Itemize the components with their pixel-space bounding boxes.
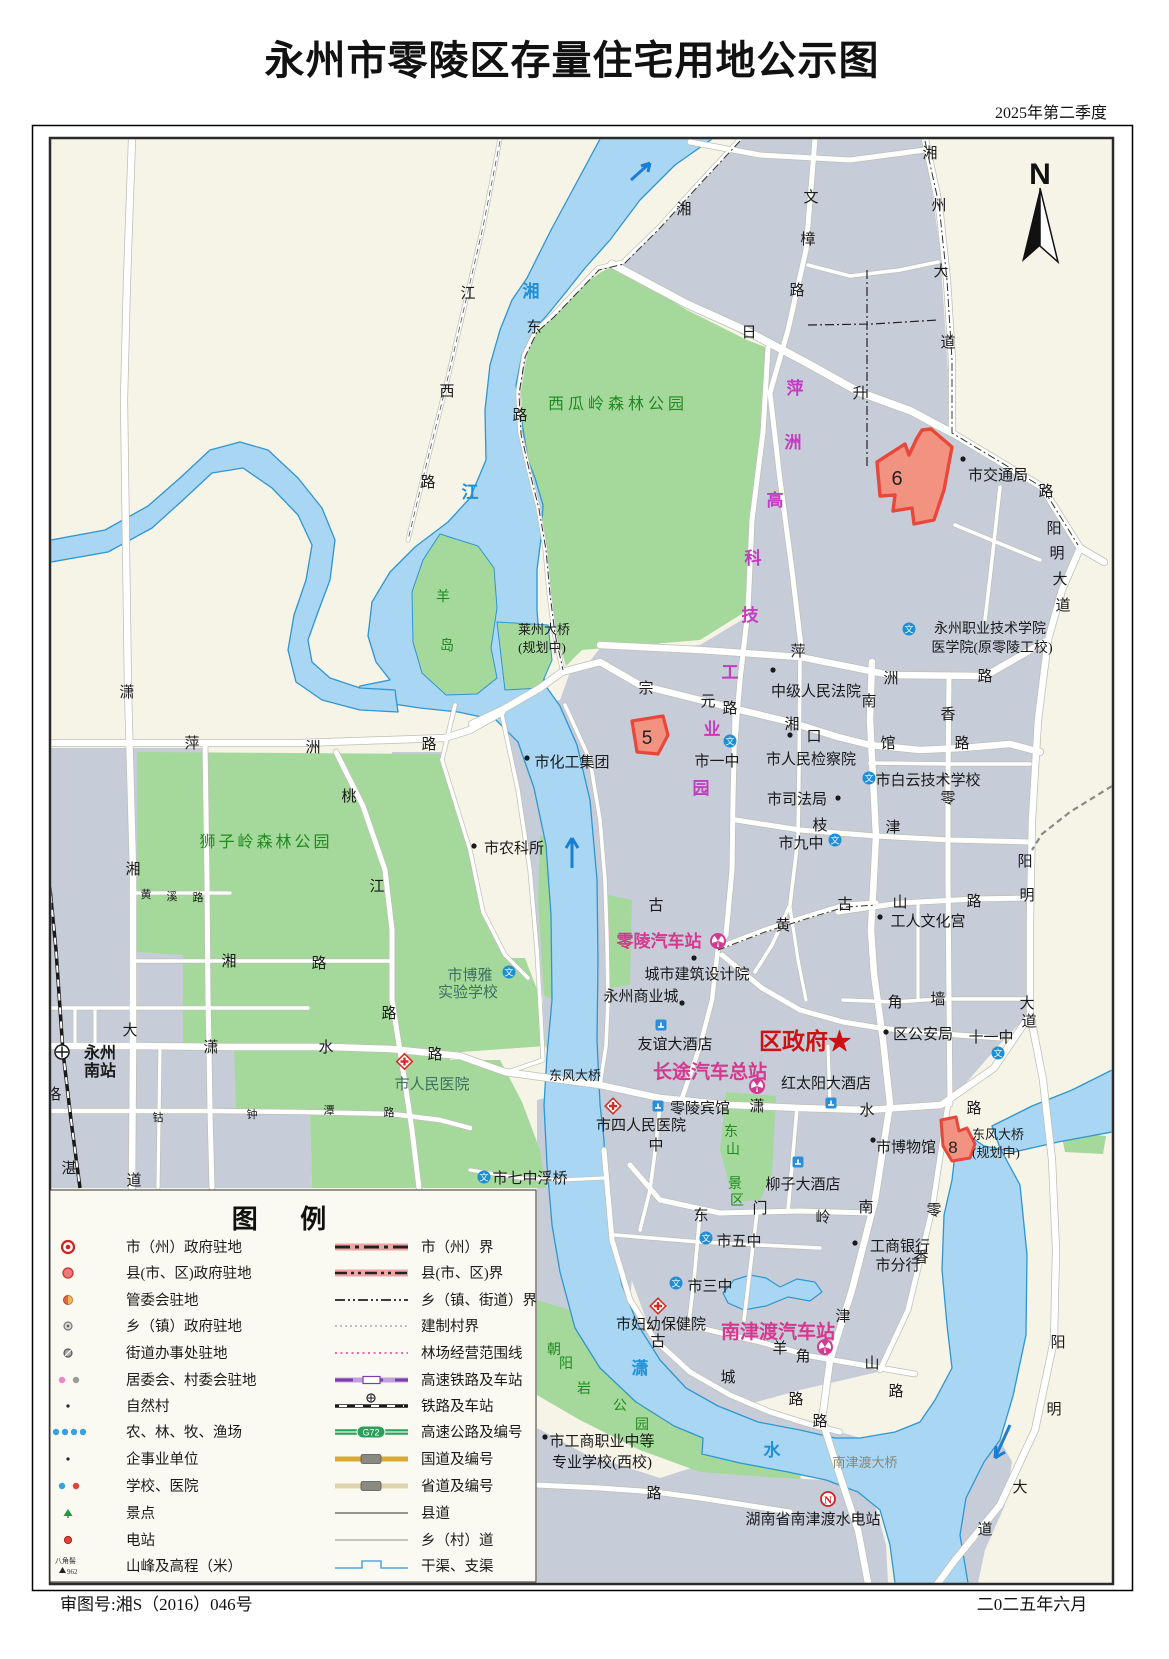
svg-text:工人文化宫: 工人文化宫 [890,913,965,930]
svg-text:湘: 湘 [125,861,140,878]
svg-text:路: 路 [427,1046,442,1063]
svg-text:路: 路 [311,955,326,972]
svg-text:永州: 永州 [83,1043,116,1062]
svg-text:建制村界: 建制村界 [421,1318,479,1335]
svg-text:南津渡大桥: 南津渡大桥 [832,1455,897,1470]
svg-text:路: 路 [1038,483,1053,500]
svg-text:零陵汽车站: 零陵汽车站 [616,931,702,951]
svg-text:钴: 钴 [153,1110,164,1124]
svg-text:路: 路 [788,1391,803,1408]
svg-text:文: 文 [504,967,513,978]
svg-text:溪: 溪 [167,890,178,903]
svg-text:园: 园 [693,779,710,798]
svg-text:工商银行: 工商银行 [870,1238,930,1255]
svg-text:城: 城 [720,1369,735,1386]
svg-text:洲: 洲 [883,671,898,687]
svg-text:江: 江 [460,285,475,302]
svg-text:5: 5 [642,728,653,749]
svg-text:景点: 景点 [126,1505,155,1522]
svg-text:州: 州 [931,198,946,214]
svg-text:十一中: 十一中 [968,1029,1013,1046]
svg-text:市三中: 市三中 [687,1278,732,1295]
svg-text:友谊大酒店: 友谊大酒店 [637,1036,712,1053]
svg-text:萍: 萍 [790,643,805,660]
svg-text:高速铁路及车站: 高速铁路及车站 [421,1372,523,1389]
svg-text:湘: 湘 [676,201,691,218]
svg-text:山: 山 [726,1142,740,1158]
svg-text:湘: 湘 [784,716,799,733]
svg-text:市司法局: 市司法局 [767,791,827,808]
svg-text:羊: 羊 [436,589,450,605]
svg-text:审图号:湘S（2016）046号: 审图号:湘S（2016）046号 [60,1595,253,1614]
svg-text:元: 元 [700,694,715,710]
svg-text:潇: 潇 [203,1039,218,1056]
svg-text:大: 大 [122,1022,137,1039]
svg-text:农、林、牧、渔场: 农、林、牧、渔场 [126,1424,242,1441]
svg-text:山: 山 [892,894,907,911]
svg-text:图 例: 图 例 [232,1205,345,1234]
svg-text:阳: 阳 [1050,1334,1065,1351]
svg-text:路: 路 [381,1005,396,1022]
svg-text:市一中: 市一中 [694,753,739,770]
svg-text:潇: 潇 [119,684,134,701]
svg-text:永州市零陵区存量住宅用地公示图: 永州市零陵区存量住宅用地公示图 [265,38,880,83]
svg-text:升: 升 [852,385,867,402]
svg-text:乡（镇、街道）界: 乡（镇、街道）界 [421,1292,537,1309]
svg-text:中级人民法院: 中级人民法院 [771,682,861,700]
svg-text:区: 区 [730,1193,744,1209]
svg-text:文: 文 [671,1278,680,1289]
svg-text:古: 古 [648,897,663,914]
svg-text:街道办事处驻地: 街道办事处驻地 [126,1345,228,1362]
svg-text:墙: 墙 [930,991,945,1008]
svg-text:居委会、村委会驻地: 居委会、村委会驻地 [126,1372,257,1389]
svg-text:宗: 宗 [638,679,653,697]
svg-text:路: 路 [193,891,204,904]
svg-text:萍: 萍 [787,378,804,398]
svg-text:实验学校: 实验学校 [438,984,498,1001]
svg-text:道: 道 [977,1521,992,1538]
svg-text:市五中: 市五中 [716,1233,761,1250]
svg-text:路: 路 [812,1413,827,1430]
svg-text:技: 技 [742,605,760,625]
svg-text:管委会驻地: 管委会驻地 [126,1292,199,1309]
svg-text:角: 角 [795,1348,810,1365]
svg-text:市博雅: 市博雅 [447,967,492,984]
svg-text:莱州大桥: 莱州大桥 [518,622,570,637]
svg-text:道: 道 [126,1172,141,1189]
svg-text:市工商职业中等: 市工商职业中等 [549,1432,654,1450]
svg-text:学校、医院: 学校、医院 [126,1478,199,1495]
svg-text:路: 路 [888,1383,903,1400]
svg-text:8: 8 [948,1138,957,1157]
svg-text:津: 津 [885,819,900,836]
svg-text:道: 道 [1021,1013,1036,1030]
svg-text:高: 高 [767,490,784,510]
svg-text:市白云技术学校: 市白云技术学校 [875,772,980,789]
svg-text:明: 明 [1019,887,1034,904]
svg-text:大: 大 [1019,995,1034,1012]
svg-text:科: 科 [745,548,762,568]
svg-text:钟: 钟 [247,1107,258,1121]
svg-text:东: 东 [526,319,541,336]
svg-text:湘: 湘 [922,145,937,162]
svg-text:路: 路 [954,735,969,752]
svg-text:湘: 湘 [523,281,540,301]
svg-text:大: 大 [1012,1479,1027,1496]
svg-text:文: 文 [904,624,913,635]
svg-text:电站: 电站 [126,1532,155,1549]
svg-text:文: 文 [701,1233,710,1244]
svg-text:湖南省南津渡水电站: 湖南省南津渡水电站 [745,1511,880,1528]
svg-text:(规划中): (规划中) [518,640,566,655]
svg-text:市农科所: 市农科所 [484,840,544,857]
svg-text:柳子大酒店: 柳子大酒店 [765,1176,840,1193]
svg-text:文: 文 [803,189,818,206]
svg-text:国道及编号: 国道及编号 [421,1451,494,1468]
svg-text:962: 962 [67,1568,78,1576]
svg-text:洲: 洲 [305,740,320,756]
svg-text:县道: 县道 [421,1505,450,1522]
svg-text:市（州）界: 市（州）界 [421,1239,494,1256]
svg-text:企事业单位: 企事业单位 [126,1450,199,1468]
svg-text:省道及编号: 省道及编号 [421,1478,494,1495]
svg-text:长途汽车总站: 长途汽车总站 [653,1060,767,1083]
svg-text:水: 水 [859,1102,874,1119]
svg-text:路: 路 [421,736,436,753]
svg-text:山: 山 [864,1355,879,1372]
svg-text:路: 路 [977,668,992,685]
svg-text:N: N [824,1495,832,1507]
svg-text:门: 门 [752,1200,767,1217]
svg-text:黄: 黄 [775,917,790,934]
svg-text:东风大桥: 东风大桥 [549,1068,601,1083]
svg-text:市九中: 市九中 [778,835,823,852]
svg-text:景: 景 [728,1177,742,1192]
svg-text:桃: 桃 [341,788,356,805]
svg-text:津: 津 [835,1308,850,1325]
svg-text:铁路及车站: 铁路及车站 [421,1398,494,1415]
svg-text:八角髻: 八角髻 [55,1556,76,1565]
svg-text:市人民检察院: 市人民检察院 [766,750,856,768]
svg-text:南站: 南站 [84,1061,116,1080]
svg-text:路: 路 [966,893,981,910]
svg-text:路: 路 [512,407,527,424]
svg-text:水: 水 [764,1440,782,1460]
svg-text:江: 江 [369,878,384,895]
svg-text:城市建筑设计院: 城市建筑设计院 [644,965,749,983]
svg-text:潇: 潇 [632,1358,649,1378]
svg-text:医学院(原零陵工校): 医学院(原零陵工校) [931,639,1053,656]
svg-text:公: 公 [613,1399,627,1414]
svg-text:南津渡汽车站: 南津渡汽车站 [721,1320,835,1343]
svg-text:岭: 岭 [815,1209,830,1226]
svg-text:阳: 阳 [1017,853,1032,870]
svg-text:业: 业 [704,720,721,739]
svg-text:市分行: 市分行 [875,1257,920,1274]
svg-text:口: 口 [806,729,821,745]
svg-text:阳: 阳 [1046,520,1061,537]
svg-text:山峰及高程（米）: 山峰及高程（米） [126,1558,242,1575]
svg-text:永州职业技术学院: 永州职业技术学院 [934,621,1046,637]
svg-text:市（州）政府驻地: 市（州）政府驻地 [126,1239,242,1256]
svg-text:路: 路 [420,474,435,491]
svg-text:市人民医院: 市人民医院 [394,1075,469,1093]
svg-text:乡（村）道: 乡（村）道 [421,1532,494,1549]
svg-text:6: 6 [891,468,902,490]
svg-text:区政府★: 区政府★ [759,1028,851,1054]
svg-text:日: 日 [741,325,756,341]
svg-text:萍: 萍 [184,735,199,752]
svg-text:高速公路及编号: 高速公路及编号 [421,1424,523,1441]
svg-text:洲: 洲 [785,433,802,452]
svg-text:N: N [1029,158,1051,191]
svg-text:零陵宾馆: 零陵宾馆 [670,1100,730,1117]
svg-text:文: 文 [993,1048,1002,1059]
svg-text:枝: 枝 [812,817,827,834]
svg-text:路: 路 [384,1106,395,1119]
svg-text:自然村: 自然村 [126,1398,170,1415]
svg-text:古: 古 [650,1333,665,1350]
svg-text:潇: 潇 [749,1098,764,1115]
svg-text:工: 工 [722,663,739,682]
svg-text:岩: 岩 [577,1381,591,1397]
svg-text:东风大桥: 东风大桥 [972,1127,1024,1142]
svg-text:市四人民医院: 市四人民医院 [596,1116,686,1134]
svg-text:西瓜岭森林公园: 西瓜岭森林公园 [548,395,688,413]
svg-text:县(市、区)政府驻地: 县(市、区)政府驻地 [126,1265,252,1282]
svg-text:黄: 黄 [141,887,152,901]
svg-text:西: 西 [439,384,454,400]
svg-text:市七中浮桥: 市七中浮桥 [492,1170,567,1187]
svg-text:文: 文 [830,835,839,846]
svg-text:古: 古 [837,896,852,913]
svg-text:道: 道 [940,334,955,351]
svg-text:阳: 阳 [559,1356,573,1372]
svg-text:林场经营范围线: 林场经营范围线 [421,1345,523,1362]
svg-text:大: 大 [1052,571,1067,588]
svg-text:园: 园 [635,1418,649,1433]
svg-text:市博物馆: 市博物馆 [876,1139,936,1156]
svg-text:永州商业城: 永州商业城 [603,988,678,1005]
svg-text:路: 路 [722,700,737,717]
svg-text:文: 文 [479,1172,488,1183]
svg-text:零: 零 [926,1203,941,1219]
svg-text:路: 路 [789,282,804,299]
svg-text:馆: 馆 [880,735,895,752]
svg-text:湘: 湘 [221,953,236,970]
svg-text:县(市、区)界: 县(市、区)界 [421,1265,503,1282]
svg-text:乡（镇）政府驻地: 乡（镇）政府驻地 [126,1318,242,1335]
svg-text:文: 文 [864,773,873,784]
svg-text:樟: 樟 [800,230,815,248]
svg-text:潭: 潭 [324,1104,335,1117]
svg-text:零: 零 [940,791,955,807]
svg-text:明: 明 [1049,545,1064,562]
svg-text:市妇幼保健院: 市妇幼保健院 [616,1315,706,1333]
svg-text:2025年第二季度: 2025年第二季度 [995,104,1107,122]
svg-text:岛: 岛 [440,638,454,654]
svg-text:区公安局: 区公安局 [893,1026,953,1043]
svg-text:路: 路 [966,1100,981,1117]
svg-text:明: 明 [1046,1401,1061,1418]
svg-text:朝: 朝 [547,1342,561,1358]
svg-text:专业学校(西校): 专业学校(西校) [552,1454,652,1471]
svg-text:角: 角 [887,994,902,1011]
svg-text:南: 南 [858,1199,873,1216]
svg-text:水: 水 [318,1039,333,1056]
svg-text:二0二五年六月: 二0二五年六月 [977,1595,1088,1614]
svg-text:东: 东 [693,1207,708,1224]
svg-text:红太阳大酒店: 红太阳大酒店 [781,1075,871,1092]
svg-text:狮子岭森林公园: 狮子岭森林公园 [199,833,332,851]
svg-text:南: 南 [861,693,876,710]
svg-text:文: 文 [725,736,734,747]
svg-text:中: 中 [648,1137,663,1154]
svg-text:干渠、支渠: 干渠、支渠 [421,1558,494,1575]
svg-text:路: 路 [646,1485,661,1502]
svg-text:(规划中): (规划中) [972,1145,1020,1160]
svg-text:东: 东 [724,1124,738,1140]
svg-text:湛: 湛 [61,1160,76,1177]
svg-text:市化工集团: 市化工集团 [534,754,609,771]
svg-text:大: 大 [933,263,948,280]
svg-text:市交通局: 市交通局 [968,466,1028,484]
svg-text:G72: G72 [362,1428,379,1438]
svg-text:道: 道 [1055,597,1070,614]
svg-text:江: 江 [462,483,479,502]
svg-text:香: 香 [940,706,955,723]
